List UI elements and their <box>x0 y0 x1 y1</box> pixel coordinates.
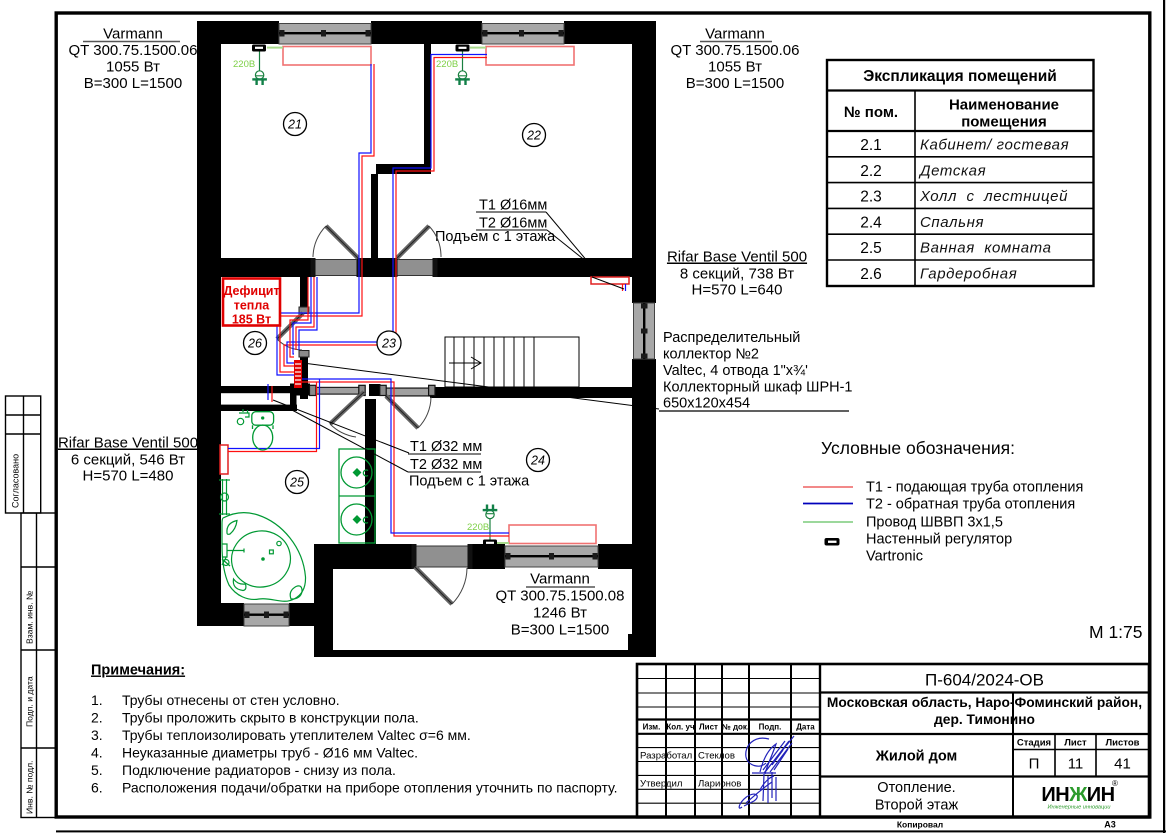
svg-text:Неуказанные диаметры труб - Ø1: Неуказанные диаметры труб - Ø16 мм Valte… <box>122 745 418 761</box>
svg-text:коллектор №2: коллектор №2 <box>663 347 759 363</box>
svg-text:П: П <box>1029 756 1040 773</box>
svg-text:Vartronic: Vartronic <box>866 549 923 565</box>
svg-text:QT 300.75.1500.06: QT 300.75.1500.06 <box>671 42 800 59</box>
svg-text:Кол. уч: Кол. уч <box>666 723 695 732</box>
svg-text:Коллекторный шкаф ШРН-1: Коллекторный шкаф ШРН-1 <box>663 380 853 396</box>
svg-text:Т1 Ø16мм: Т1 Ø16мм <box>479 198 547 214</box>
svg-text:Наименование: Наименование <box>949 97 1059 114</box>
svg-text:185 Вт: 185 Вт <box>232 313 271 327</box>
svg-text:4.: 4. <box>91 745 103 761</box>
svg-text:Трубы теплоизолировать утеплит: Трубы теплоизолировать утеплителем Valte… <box>122 727 471 743</box>
svg-text:H=570 L=480: H=570 L=480 <box>83 468 174 485</box>
svg-text:220В: 220В <box>436 59 458 70</box>
svg-text:тепла: тепла <box>234 299 271 313</box>
svg-text:Копировал: Копировал <box>897 820 943 830</box>
svg-text:1246 Вт: 1246 Вт <box>533 605 587 622</box>
svg-text:650х120х454: 650х120х454 <box>663 396 750 412</box>
svg-text:Примечания:: Примечания: <box>91 663 185 679</box>
svg-text:25: 25 <box>289 476 304 490</box>
svg-text:Ванная комната: Ванная комната <box>920 240 1052 257</box>
svg-text:Подп. и дата: Подп. и дата <box>25 676 35 727</box>
svg-text:Расположения подачи/обратки на: Расположения подачи/обратки на приборе о… <box>122 780 618 796</box>
svg-text:Varmann: Varmann <box>103 26 163 43</box>
svg-text:B=300 L=1500: B=300 L=1500 <box>511 622 609 639</box>
svg-text:1055 Вт: 1055 Вт <box>708 59 762 76</box>
svg-text:Трубы проложить скрыто в конст: Трубы проложить скрыто в конструкции пол… <box>122 710 419 726</box>
svg-text:Утвердил: Утвердил <box>640 779 682 790</box>
svg-text:®: ® <box>1112 779 1118 788</box>
svg-text:11: 11 <box>1068 756 1084 773</box>
svg-text:Подъем с 1 этажа: Подъем с 1 этажа <box>409 474 530 490</box>
svg-text:Экспликация помещений: Экспликация помещений <box>863 68 1057 85</box>
svg-text:Изм.: Изм. <box>643 723 661 732</box>
svg-text:Настенный регулятор: Настенный регулятор <box>866 532 1012 548</box>
svg-text:помещения: помещения <box>961 114 1047 131</box>
svg-text:Инв. № подл.: Инв. № подл. <box>25 760 35 814</box>
svg-text:Лист: Лист <box>1064 738 1087 749</box>
svg-text:41: 41 <box>1114 756 1131 773</box>
svg-text:220В: 220В <box>233 59 255 70</box>
svg-text:Кабинет/ гостевая: Кабинет/ гостевая <box>920 137 1069 154</box>
svg-text:дер. Тимонино: дер. Тимонино <box>934 712 1035 727</box>
svg-text:6 секций, 546 Вт: 6 секций, 546 Вт <box>71 452 185 469</box>
svg-text:QT 300.75.1500.08: QT 300.75.1500.08 <box>496 588 625 605</box>
svg-text:Разработал: Разработал <box>640 751 692 762</box>
svg-text:8 секций, 738 Вт: 8 секций, 738 Вт <box>680 266 794 283</box>
svg-text:П-604/2024-ОВ: П-604/2024-ОВ <box>925 671 1044 690</box>
svg-text:Дата: Дата <box>796 723 815 732</box>
svg-text:Rifar Base Ventil 500: Rifar Base Ventil 500 <box>667 249 807 266</box>
svg-text:Жилой дом: Жилой дом <box>875 749 957 765</box>
svg-text:Трубы отнесены от стен условно: Трубы отнесены от стен условно. <box>122 692 340 708</box>
svg-text:Дефицит: Дефицит <box>223 284 279 298</box>
svg-text:B=300 L=1500: B=300 L=1500 <box>686 75 784 92</box>
svg-text:220В: 220В <box>467 522 489 533</box>
svg-text:Стадия: Стадия <box>1017 738 1051 749</box>
svg-text:№ док.: № док. <box>722 723 749 732</box>
svg-text:Подп.: Подп. <box>759 723 782 732</box>
svg-text:Varmann: Varmann <box>705 26 765 43</box>
svg-text:2.3: 2.3 <box>860 189 882 206</box>
svg-text:2.: 2. <box>91 710 103 726</box>
svg-text:21: 21 <box>287 118 302 132</box>
svg-text:Подключение радиаторов - снизу: Подключение радиаторов - снизу из пола. <box>122 762 396 778</box>
svg-text:2.1: 2.1 <box>860 137 882 154</box>
svg-text:QT 300.75.1500.06: QT 300.75.1500.06 <box>69 42 198 59</box>
svg-text:2.2: 2.2 <box>860 163 882 180</box>
svg-text:Т1 - подающая труба отопления: Т1 - подающая труба отопления <box>866 480 1083 496</box>
svg-text:Гардеробная: Гардеробная <box>920 266 1017 283</box>
svg-text:Varmann: Varmann <box>530 571 590 588</box>
svg-text:Т2 Ø32 мм: Т2 Ø32 мм <box>410 457 482 473</box>
svg-text:B=300 L=1500: B=300 L=1500 <box>84 75 182 92</box>
svg-text:3.: 3. <box>91 727 103 743</box>
svg-text:Листов: Листов <box>1106 738 1140 749</box>
svg-text:Условные обозначения:: Условные обозначения: <box>821 438 1015 458</box>
svg-text:Взам. инв. №: Взам. инв. № <box>25 591 35 644</box>
svg-text:Подъем с 1 этажа: Подъем с 1 этажа <box>435 229 556 245</box>
svg-text:Т1 Ø32 мм: Т1 Ø32 мм <box>410 439 482 455</box>
svg-text:Valtec, 4 отвода 1"х¾': Valtec, 4 отвода 1"х¾' <box>663 363 808 379</box>
svg-text:ИНЖИН: ИНЖИН <box>1041 784 1114 806</box>
svg-text:Ларионов: Ларионов <box>698 779 741 790</box>
svg-text:Т2 - обратная труба отопления: Т2 - обратная труба отопления <box>866 497 1075 513</box>
svg-text:Отопление.: Отопление. <box>877 780 955 796</box>
svg-text:Распределительный: Распределительный <box>663 330 800 346</box>
svg-text:Инженерные инновации: Инженерные инновации <box>1048 805 1111 811</box>
svg-text:Московская область, Наро-Фомин: Московская область, Наро-Фоминский район… <box>827 695 1142 710</box>
svg-text:Детская: Детская <box>918 162 986 179</box>
svg-text:5.: 5. <box>91 762 103 778</box>
svg-text:Согласовано: Согласовано <box>11 454 21 508</box>
svg-text:23: 23 <box>381 337 396 351</box>
svg-text:2.5: 2.5 <box>860 240 882 257</box>
svg-text:H=570 L=640: H=570 L=640 <box>692 282 783 299</box>
svg-text:26: 26 <box>247 337 262 351</box>
svg-text:Rifar Base Ventil 500: Rifar Base Ventil 500 <box>58 435 198 452</box>
svg-text:Второй этаж: Второй этаж <box>875 798 959 814</box>
svg-text:2.4: 2.4 <box>860 214 882 231</box>
svg-text:А3: А3 <box>1104 820 1116 830</box>
svg-text:Холл с лестницей: Холл с лестницей <box>919 188 1068 205</box>
svg-text:М 1:75: М 1:75 <box>1089 622 1143 642</box>
svg-text:6.: 6. <box>91 780 103 796</box>
svg-text:24: 24 <box>530 454 545 468</box>
svg-text:№ пом.: № пом. <box>844 104 898 121</box>
svg-text:1055 Вт: 1055 Вт <box>106 59 160 76</box>
svg-text:Стеклов: Стеклов <box>698 751 735 762</box>
svg-text:22: 22 <box>526 129 541 143</box>
svg-text:Лист: Лист <box>699 723 718 732</box>
svg-text:Провод ШВВП 3х1,5: Провод ШВВП 3х1,5 <box>866 515 1003 531</box>
svg-text:2.6: 2.6 <box>860 266 882 283</box>
svg-text:Спальня: Спальня <box>920 214 984 231</box>
svg-text:1.: 1. <box>91 692 103 708</box>
